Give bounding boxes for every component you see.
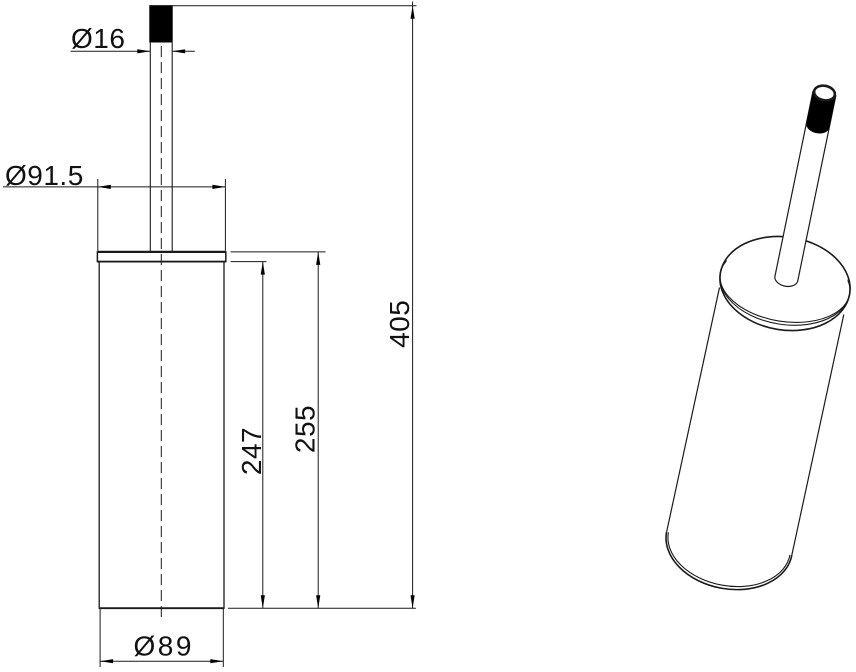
svg-text:247: 247 xyxy=(236,427,267,475)
svg-text:Ø89: Ø89 xyxy=(134,631,194,662)
svg-text:255: 255 xyxy=(289,405,320,453)
svg-text:405: 405 xyxy=(384,300,415,348)
svg-text:Ø16: Ø16 xyxy=(71,23,125,54)
svg-text:Ø91.5: Ø91.5 xyxy=(5,160,84,191)
